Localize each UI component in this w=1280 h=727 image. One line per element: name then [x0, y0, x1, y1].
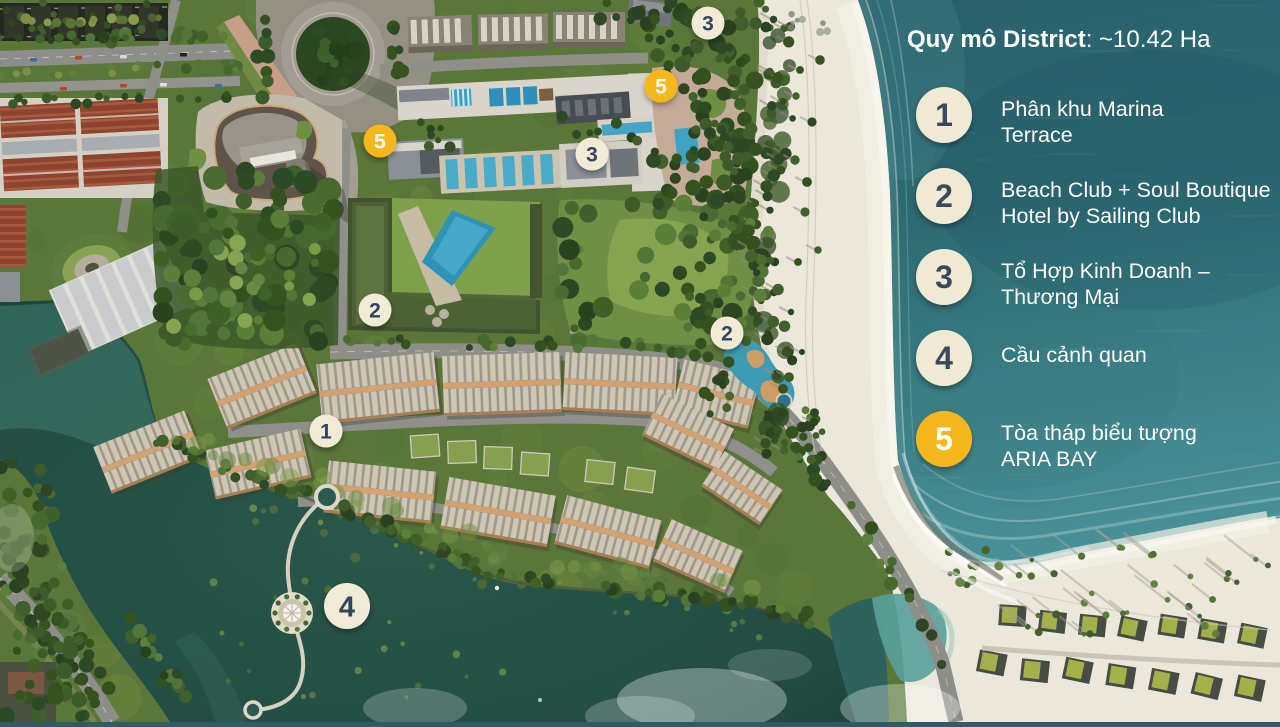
svg-text:Terrace: Terrace — [1001, 123, 1073, 147]
svg-text:Phân khu Marina: Phân khu Marina — [1001, 97, 1164, 121]
svg-text:Cầu cảnh quan: Cầu cảnh quan — [1001, 343, 1147, 367]
svg-text:1: 1 — [320, 421, 332, 444]
svg-text:Tòa tháp biểu tượng: Tòa tháp biểu tượng — [1001, 421, 1197, 445]
svg-text:Hotel by Sailing Club: Hotel by Sailing Club — [1001, 204, 1201, 228]
svg-text:1: 1 — [935, 97, 953, 133]
svg-text:3: 3 — [586, 144, 598, 167]
svg-text:Quy mô District: ~10.42 Ha: Quy mô District: ~10.42 Ha — [907, 26, 1211, 53]
svg-text:2: 2 — [935, 178, 953, 214]
svg-text:Beach Club + Soul Boutique: Beach Club + Soul Boutique — [1001, 178, 1271, 202]
svg-text:3: 3 — [935, 259, 953, 295]
svg-text:Tổ Hợp Kinh Doanh –: Tổ Hợp Kinh Doanh – — [1001, 259, 1210, 283]
svg-text:5: 5 — [655, 76, 667, 99]
svg-text:Thương Mại: Thương Mại — [1001, 285, 1119, 309]
svg-text:4: 4 — [935, 340, 953, 376]
svg-text:2: 2 — [369, 300, 381, 323]
svg-text:3: 3 — [702, 13, 714, 36]
svg-text:2: 2 — [721, 323, 733, 346]
svg-text:ARIA BAY: ARIA BAY — [1001, 447, 1097, 471]
svg-text:4: 4 — [339, 591, 355, 623]
svg-text:5: 5 — [374, 131, 386, 154]
svg-text:5: 5 — [935, 421, 953, 457]
